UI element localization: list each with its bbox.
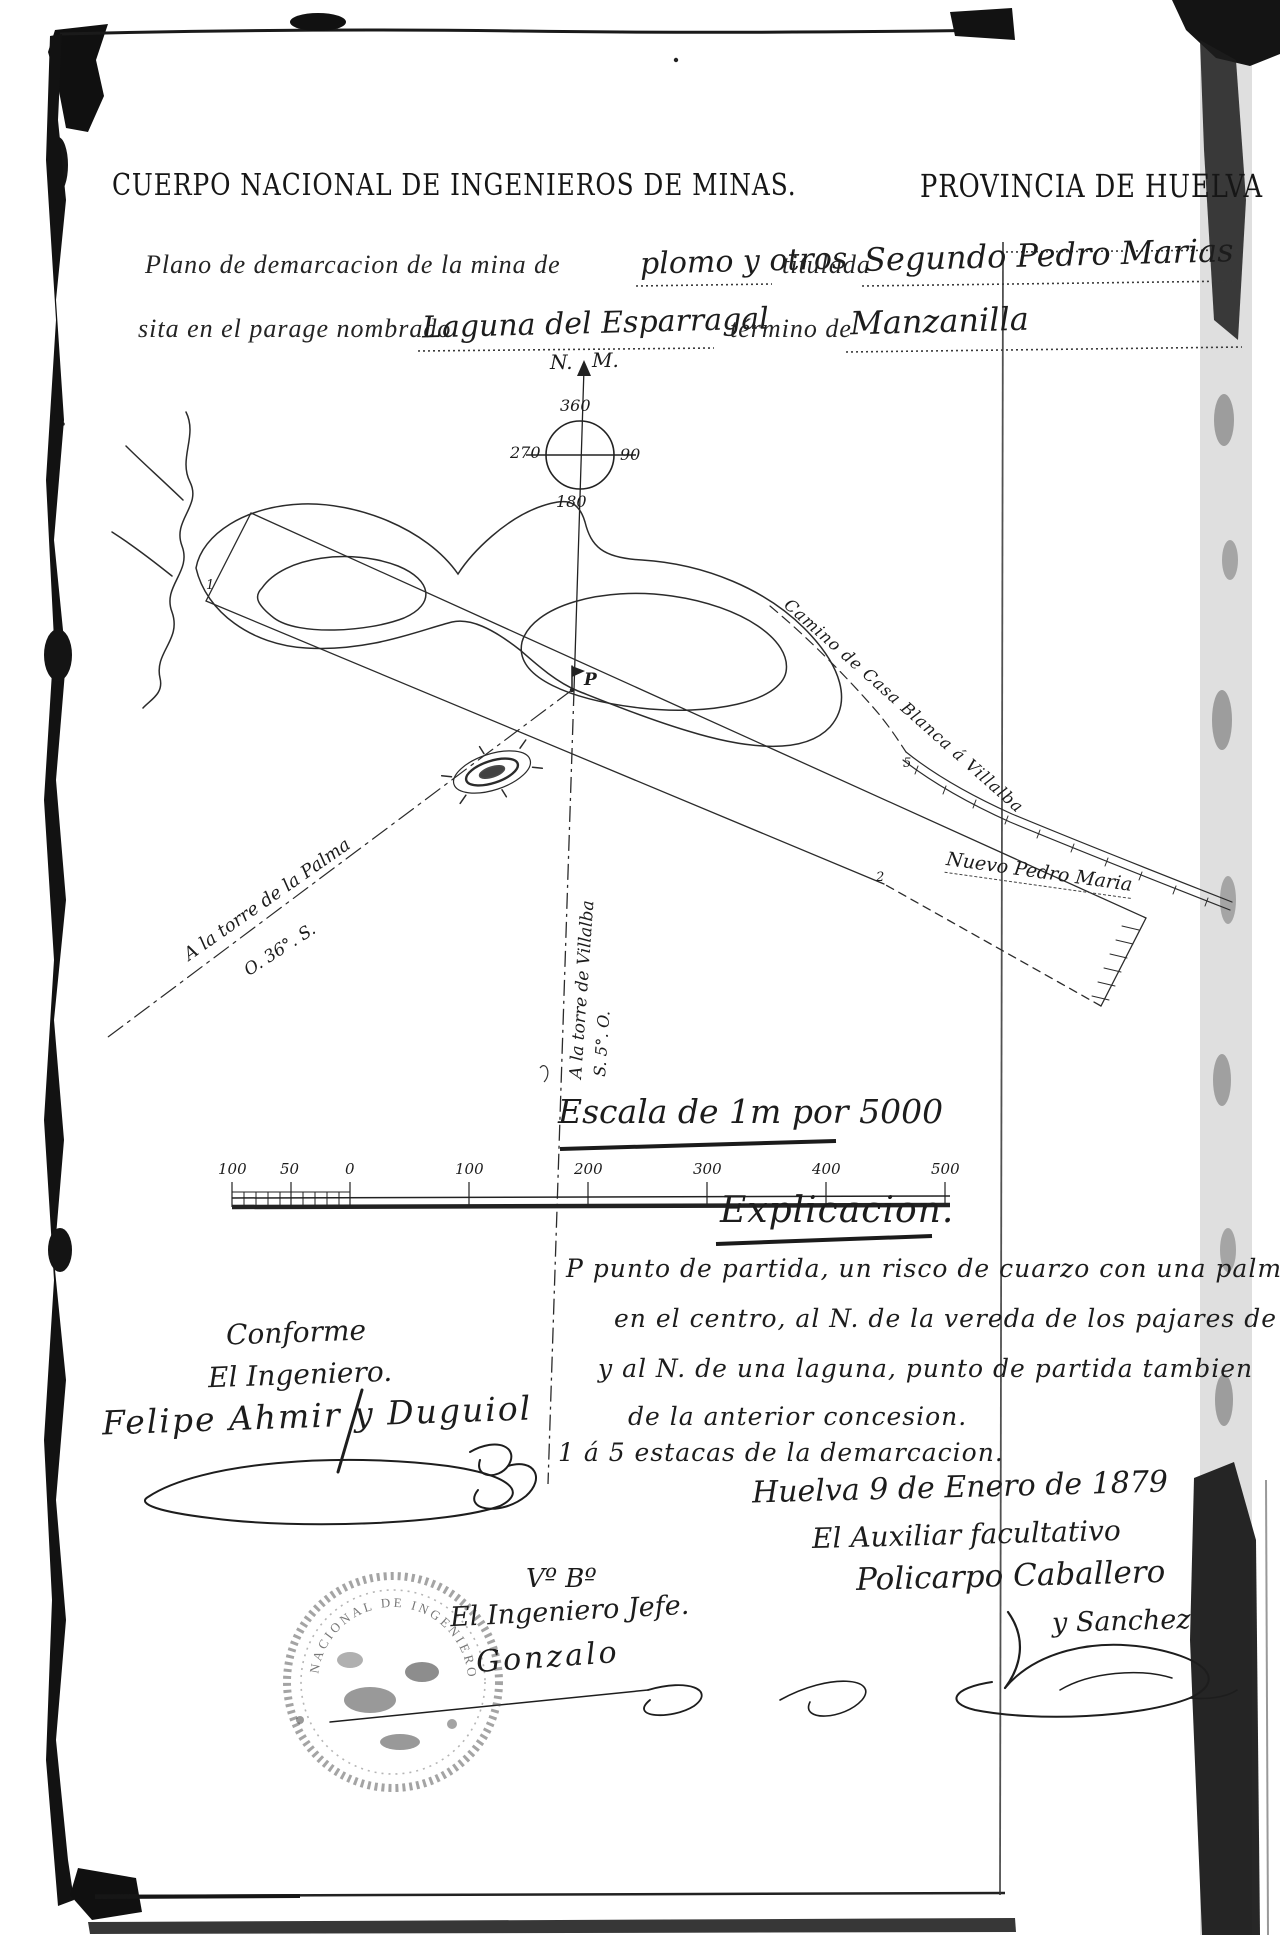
conforme-label: Conforme [225,1314,366,1352]
quartz-hill [437,730,548,814]
jefe-signature-rubric [330,1681,866,1722]
explanation-line-4: de la anterior concesion. [628,1402,967,1431]
form-line2-printed-b: término de [730,314,852,344]
scale-title-underline [560,1141,836,1149]
scale-tick-50: 50 [280,1160,299,1178]
explanation-line-2: en el centro, al N. de la vereda de los … [614,1304,1280,1333]
compass-90: 90 [620,445,640,464]
compass-270: 270 [510,443,541,462]
explanation-line-1: P punto de partida, un risco de cuarzo c… [566,1254,1280,1283]
form-line2-printed-a: sita en el parage nombrado [138,314,451,344]
form-line1-printed-a: Plano de demarcacion de la mina de [145,250,561,280]
stake-5-label: 5 [903,756,911,771]
scale-tick-100l: 100 [218,1160,247,1178]
explicacion-underline [716,1236,932,1244]
point-p-label: P [584,670,597,690]
form-line1-printed-b: titulada [782,250,871,280]
scale-tick-300: 300 [693,1160,722,1178]
explanation-heading: Explicacion. [720,1190,954,1231]
scale-tick-500: 500 [931,1160,960,1178]
villalba-meridian-line [548,690,574,1484]
scale-tick-100: 100 [455,1160,484,1178]
scanned-mining-plan-document: NACIONAL DE INGENIEROS CUERPO NACIONAL D… [0,0,1280,1935]
province-title: PROVINCIA DE HUELVA [920,168,1280,201]
auxiliar-name-2: y Sanchez [1052,1604,1191,1639]
compass-180: 180 [556,492,587,511]
explanation-line-5: 1 á 5 estacas de la demarcacion. [558,1438,1004,1467]
scale-title: Escala de 1m por 5000 [558,1092,943,1131]
compass-north-label-m: M. [592,348,619,372]
compass-north-label-n: N. [550,350,573,374]
org-title: CUERPO NACIONAL DE INGENIEROS DE MINAS. [112,168,856,199]
scale-tick-200: 200 [574,1160,603,1178]
visto-bueno-label: Vº Bº [526,1564,597,1594]
scale-tick-0: 0 [345,1160,355,1178]
stray-pen-mark [540,1066,548,1082]
plan-line-art: NACIONAL DE INGENIEROS [0,0,1280,1935]
stake-1-label: 1 [206,578,214,593]
compass-360: 360 [560,396,591,415]
termino-entry: Manzanilla [850,300,1030,343]
stake-2-label: 2 [876,870,884,885]
scale-tick-400: 400 [812,1160,841,1178]
engineer-role: El Ingeniero. [207,1355,392,1394]
explanation-line-3: y al N. de una laguna, punto de partida … [598,1354,1253,1383]
